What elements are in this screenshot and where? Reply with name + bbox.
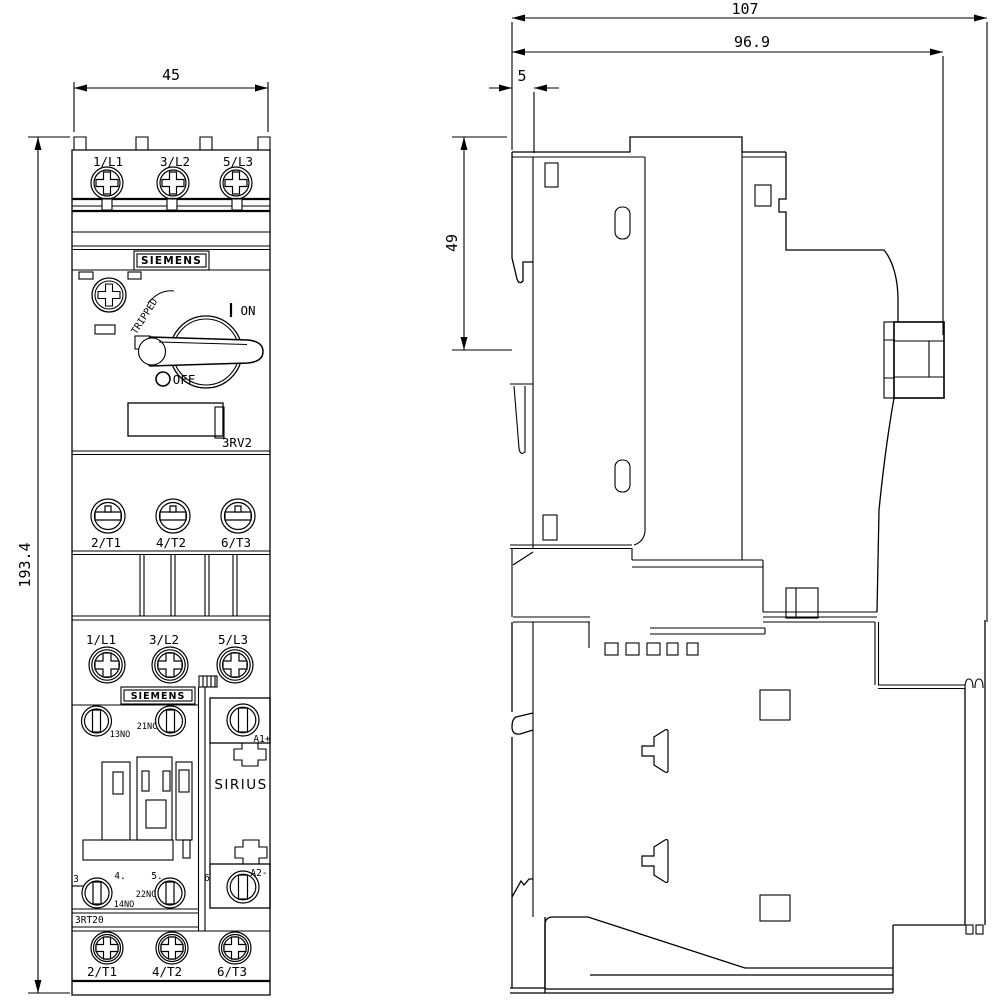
- contactor-step-edge: [763, 622, 879, 685]
- rear-foot: [966, 925, 973, 934]
- indicator-window: [128, 272, 141, 279]
- din-clip-lower: [512, 737, 533, 897]
- din-clip-upper: [512, 152, 533, 283]
- mech-slot: [113, 772, 123, 794]
- slot: [687, 643, 698, 655]
- knob-bulge: [884, 250, 898, 322]
- breaker-line-terminals: 1/L1 3/L2 5/L3: [91, 154, 253, 210]
- screw-icon: [227, 704, 259, 736]
- trip-unit-bottom: [763, 567, 877, 617]
- position-label: 4.: [114, 871, 125, 882]
- dim-label-96-9: 96.9: [734, 33, 770, 51]
- terminal-label: 6/T3: [217, 964, 247, 979]
- test-button[interactable]: [95, 325, 115, 334]
- side-top-edge: [512, 137, 786, 152]
- rail-gap: [512, 548, 533, 617]
- rear-bumps: [965, 679, 983, 688]
- screw-icon: [82, 878, 112, 908]
- terminal-label: 5/L3: [218, 632, 248, 647]
- breaker-model-label: 3RV2: [222, 435, 252, 450]
- dimension-rail-offset: 5: [489, 67, 559, 153]
- slot: [647, 643, 660, 655]
- screw-icon: [91, 167, 123, 199]
- position-label: 3: [73, 874, 79, 885]
- link-module-bottom: [72, 616, 270, 620]
- terminal-label: 1/L1: [86, 632, 116, 647]
- rail-foot: [510, 897, 545, 993]
- aux-terminals-top: 13NO 21NC: [82, 706, 186, 740]
- terminal-label: 4/T2: [156, 535, 186, 550]
- dim-label-5: 5: [517, 67, 526, 85]
- aux-no-label: 13NO: [110, 730, 130, 740]
- front-block-edge: [634, 157, 645, 545]
- terminal-slot-row: [605, 643, 698, 655]
- slot: [605, 643, 618, 655]
- arrowhead: [461, 137, 468, 150]
- contactor-line-terminals: 1/L1 3/L2 5/L3: [86, 632, 253, 683]
- arrowhead: [512, 49, 525, 56]
- side-view: [510, 137, 985, 993]
- screw-icon: [156, 706, 186, 736]
- dim-label-49: 49: [443, 234, 461, 252]
- rear-column: [965, 620, 985, 925]
- dim-label-193-4: 193.4: [16, 542, 34, 587]
- screw-icon: [219, 932, 251, 964]
- channel-walls: [199, 687, 206, 931]
- mounting-tabs: [74, 137, 270, 150]
- aux-nc-label: 21NC: [137, 722, 157, 732]
- series-label: SIRIUS: [214, 777, 267, 793]
- screw-icon: [89, 647, 125, 683]
- coil-wiring-channel: [199, 676, 218, 931]
- brand-text: SIEMENS: [141, 255, 202, 267]
- housing-hole: [760, 690, 790, 720]
- housing-hole: [545, 163, 558, 187]
- arrowhead: [35, 137, 42, 150]
- base-profile: [545, 917, 965, 993]
- breaker-faceplate: TRIPPED ON OFF 3RV2: [79, 272, 263, 450]
- arrowhead: [74, 85, 87, 92]
- handle-body: [894, 322, 944, 398]
- arrowhead: [534, 85, 547, 92]
- screw-icon: [157, 167, 189, 199]
- dim-label-107: 107: [731, 0, 758, 18]
- mech-slot: [183, 840, 190, 858]
- mid-block-lip: [632, 548, 763, 567]
- handle-strip-lines: [884, 340, 894, 378]
- channel-vent-ribs: [203, 676, 215, 687]
- housing-slot: [615, 207, 630, 239]
- handle-body-lines: [894, 341, 944, 377]
- screw-icon: [217, 647, 253, 683]
- dimension-upper-height: 49: [443, 137, 512, 350]
- dimension-total-depth: 107: [512, 0, 987, 622]
- aux-terminals-bottom: 3 4. 5. 6 22NC 14NO 3RT20: [72, 871, 210, 927]
- coil-tab: [234, 743, 266, 766]
- coil-terminal-a1: A1+: [210, 698, 271, 766]
- housing-hole: [543, 515, 557, 540]
- dimensional-drawing: 45 193.4 107 96.9 5 49: [0, 0, 1000, 1000]
- terminal-label: 6/T3: [221, 535, 251, 550]
- contactor-load-terminals: 2/T1 4/T2 6/T3: [87, 932, 251, 979]
- marker-funnel: [642, 730, 668, 773]
- terminal-shelf: [650, 628, 765, 634]
- slot: [667, 643, 678, 655]
- terminal-label: 2/T1: [91, 535, 121, 550]
- contactor-mechanism: [83, 757, 192, 860]
- clip-wedge: [510, 384, 533, 453]
- din-clip-mid: [512, 622, 533, 734]
- contactor-brand-plate: SIEMENS: [121, 687, 195, 704]
- coil-terminal-a2: A2-: [210, 840, 270, 908]
- position-label: 6: [204, 873, 210, 884]
- screw-icon: [221, 499, 255, 533]
- aux-nc-label: 22NC: [136, 890, 156, 900]
- arrowhead: [461, 337, 468, 350]
- mech-slot: [146, 800, 166, 828]
- screw-icon: [152, 647, 188, 683]
- side-right-upper: [779, 152, 884, 250]
- contactor-ledge: [513, 617, 590, 648]
- cross-slot-icon: [98, 284, 120, 306]
- mech-plate: [83, 840, 173, 860]
- screw-icon: [156, 499, 190, 533]
- mech-slot: [179, 770, 189, 792]
- dimension-body-depth: 96.9: [512, 33, 943, 335]
- front-view: 1/L1 3/L2 5/L3 SIEMENS TRIPPED: [72, 137, 271, 995]
- coil-tab: [235, 840, 267, 864]
- housing-hole: [760, 895, 790, 921]
- arrowhead: [499, 85, 512, 92]
- tripped-label: TRIPPED: [129, 297, 160, 337]
- arrowhead: [512, 15, 525, 22]
- off-label: OFF: [173, 372, 196, 387]
- arrowhead: [974, 15, 987, 22]
- rear-shelf: [878, 685, 965, 689]
- terminal-label: 3/L2: [149, 632, 179, 647]
- dimension-total-height: 193.4: [16, 137, 70, 993]
- mech-slot: [163, 771, 170, 791]
- coil-a2-label: A2-: [250, 868, 267, 879]
- arrowhead: [255, 85, 268, 92]
- breaker-bottom-divider: [72, 551, 270, 555]
- screw-icon: [220, 167, 252, 199]
- slot: [626, 643, 639, 655]
- screw-icon: [91, 499, 125, 533]
- arrowhead: [35, 980, 42, 993]
- screw-icon: [82, 706, 112, 736]
- screw-icon: [91, 932, 123, 964]
- marker-funnel: [642, 840, 668, 883]
- indicator-window: [79, 272, 93, 279]
- channel-vent: [199, 676, 217, 687]
- drawing-canvas: 45 193.4 107 96.9 5 49: [0, 0, 1000, 1000]
- screw-icon: [155, 878, 185, 908]
- on-label: ON: [240, 303, 255, 318]
- handle-strip: [884, 322, 894, 398]
- mech-part: [102, 762, 130, 840]
- breaker-brand-plate: SIEMENS: [134, 251, 209, 270]
- aux-block-side: [786, 588, 818, 618]
- breaker-load-terminals: 2/T1 4/T2 6/T3: [91, 499, 255, 550]
- terminal-stems: [102, 199, 242, 210]
- mech-part: [176, 762, 192, 840]
- nameplate-window: [128, 403, 223, 436]
- screw-icon: [156, 932, 188, 964]
- knob-bulge-lower: [877, 398, 894, 612]
- contactor-model-label: 3RT20: [75, 915, 104, 926]
- front-block-bottom: [510, 545, 632, 549]
- rear-foot: [976, 925, 983, 934]
- terminal-label: 2/T1: [87, 964, 117, 979]
- housing-hole: [755, 185, 771, 206]
- housing-slot: [615, 460, 630, 492]
- dim-label-45: 45: [162, 66, 180, 84]
- mech-slot: [142, 771, 149, 791]
- off-position-mark: [156, 372, 170, 386]
- terminal-label: 4/T2: [152, 964, 182, 979]
- handle-side-profile[interactable]: [884, 322, 944, 398]
- breaker-mid-divider: [72, 451, 270, 455]
- link-module-ribs: [140, 554, 237, 616]
- dimension-front-width: 45: [74, 66, 268, 132]
- brand-text: SIEMENS: [131, 691, 186, 702]
- arrowhead: [930, 49, 943, 56]
